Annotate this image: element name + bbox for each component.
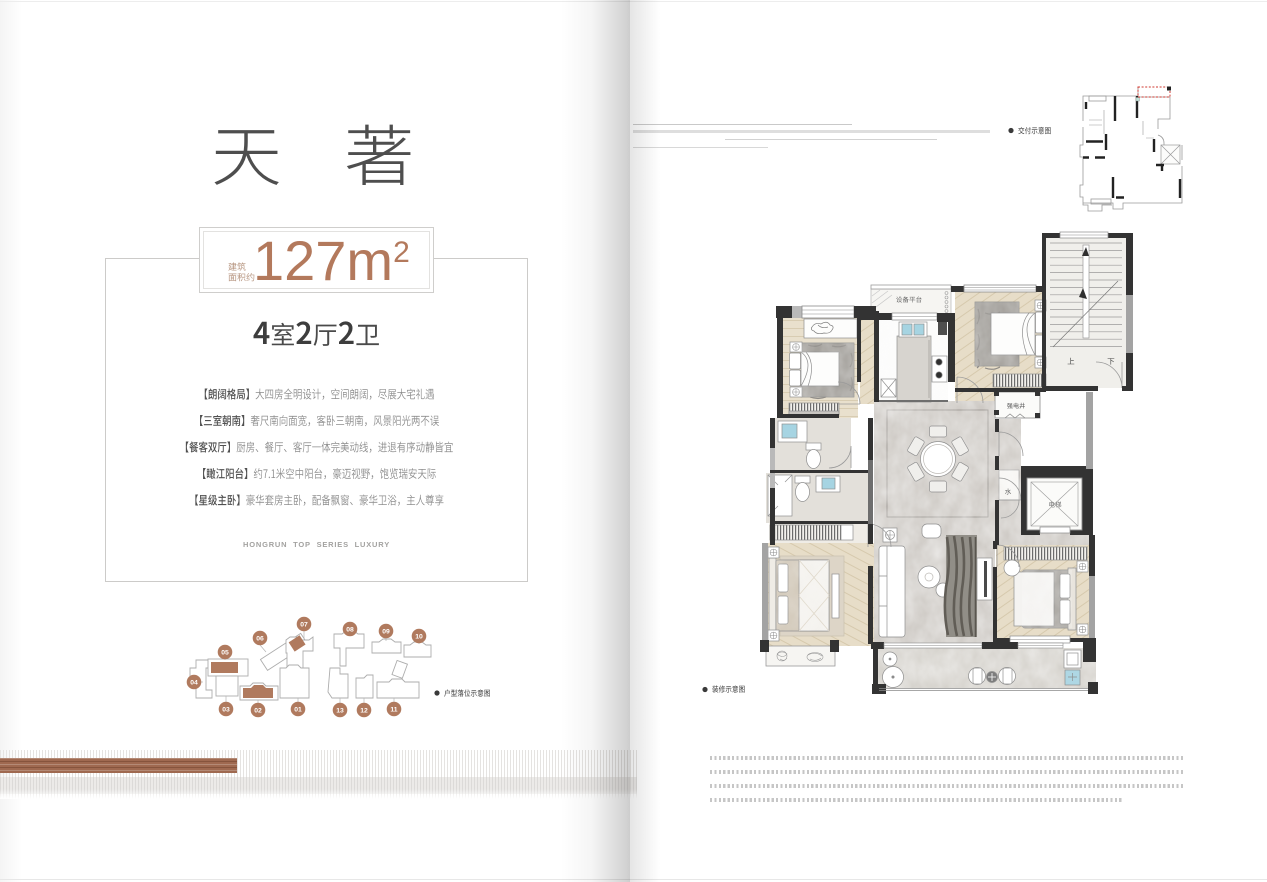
svg-text:06: 06 (256, 636, 264, 643)
svg-text:03: 03 (222, 707, 230, 714)
svg-text:04: 04 (190, 680, 198, 687)
svg-text:07: 07 (300, 622, 308, 629)
svg-text:09: 09 (382, 629, 390, 636)
svg-text:10: 10 (415, 634, 423, 641)
svg-text:11: 11 (390, 707, 397, 714)
svg-text:05: 05 (221, 650, 229, 657)
svg-text:08: 08 (346, 627, 354, 634)
svg-text:12: 12 (360, 708, 368, 715)
svg-text:02: 02 (254, 708, 262, 715)
svg-text:01: 01 (294, 707, 302, 714)
svg-text:13: 13 (336, 708, 344, 715)
